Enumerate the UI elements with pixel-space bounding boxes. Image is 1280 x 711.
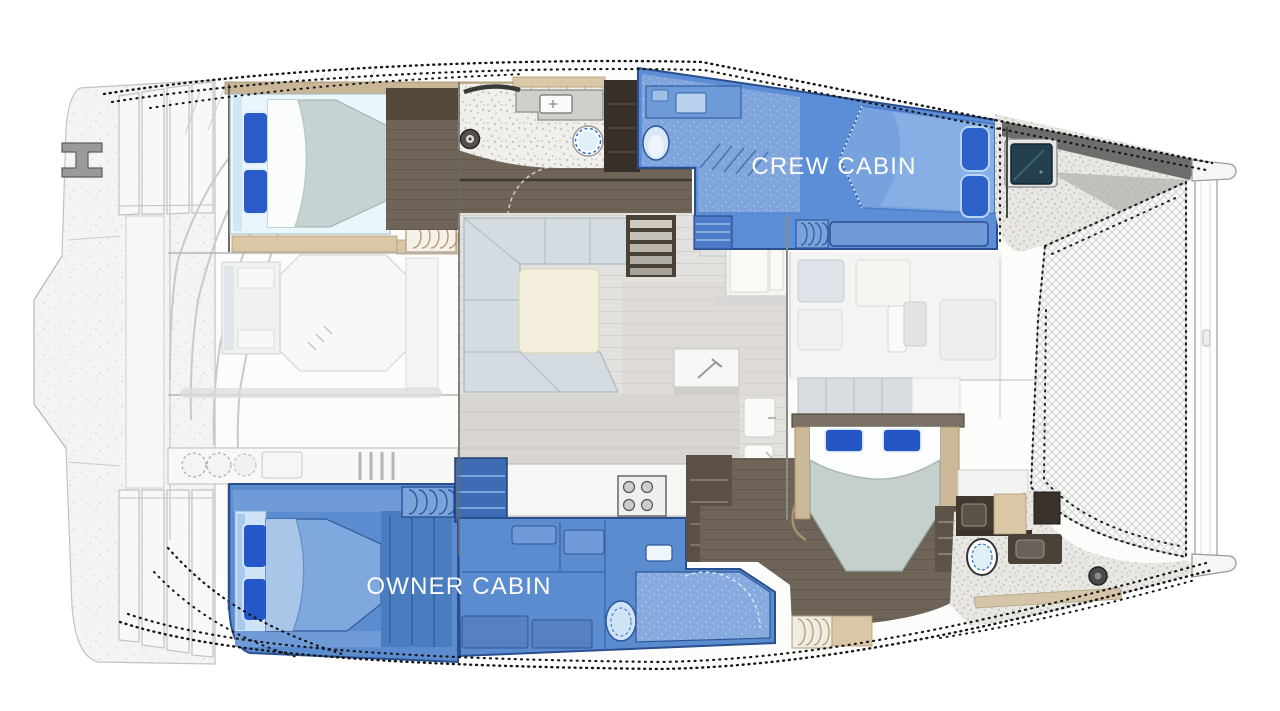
svg-text:CREW CABIN: CREW CABIN xyxy=(751,153,916,180)
svg-text:OWNER CABIN: OWNER CABIN xyxy=(366,573,551,600)
